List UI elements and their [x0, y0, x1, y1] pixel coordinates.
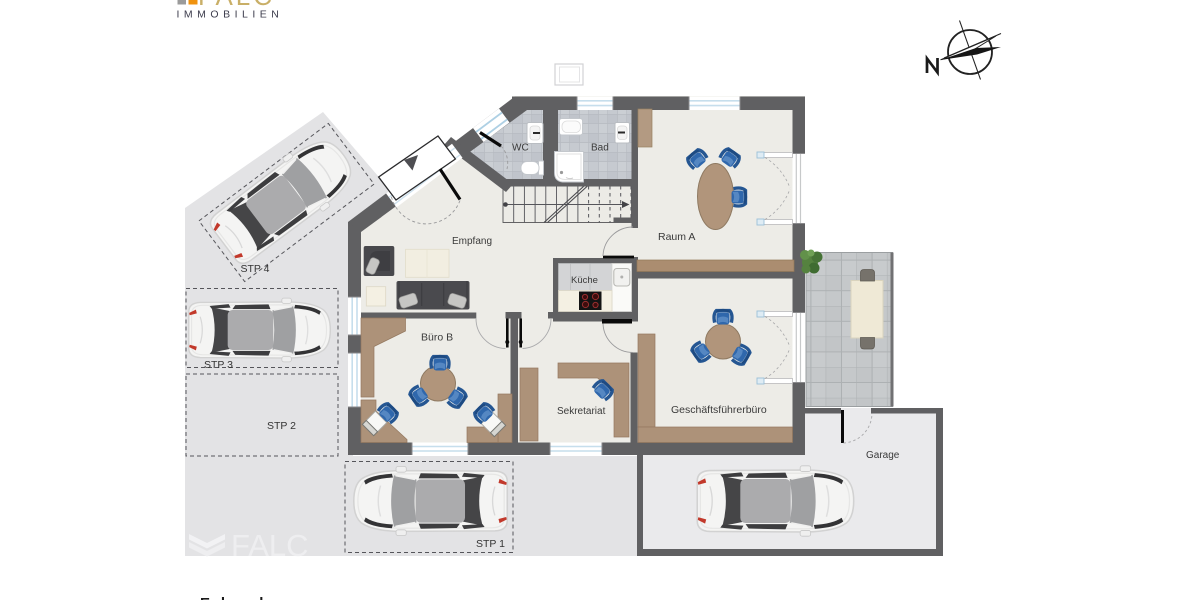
svg-text:Raum A: Raum A: [658, 231, 695, 243]
svg-text:STP 3: STP 3: [204, 359, 233, 371]
svg-text:Erdgeschoss: Erdgeschoss: [200, 595, 294, 600]
svg-text:Garage: Garage: [866, 450, 900, 461]
svg-text:Büro B: Büro B: [421, 332, 453, 344]
svg-text:Bad: Bad: [591, 143, 609, 154]
svg-text:STP 4: STP 4: [241, 263, 270, 275]
svg-text:Empfang: Empfang: [452, 236, 492, 247]
svg-text:Küche: Küche: [571, 275, 598, 286]
svg-text:STP 1: STP 1: [476, 538, 505, 550]
svg-text:Geschäftsführerbüro: Geschäftsführerbüro: [671, 404, 767, 416]
svg-text:FALC: FALC: [231, 528, 309, 563]
svg-text:WC: WC: [512, 143, 529, 154]
svg-text:IMMOBILIEN: IMMOBILIEN: [177, 9, 284, 21]
svg-text:STP 2: STP 2: [267, 420, 296, 432]
svg-text:Sekretariat: Sekretariat: [557, 406, 606, 417]
